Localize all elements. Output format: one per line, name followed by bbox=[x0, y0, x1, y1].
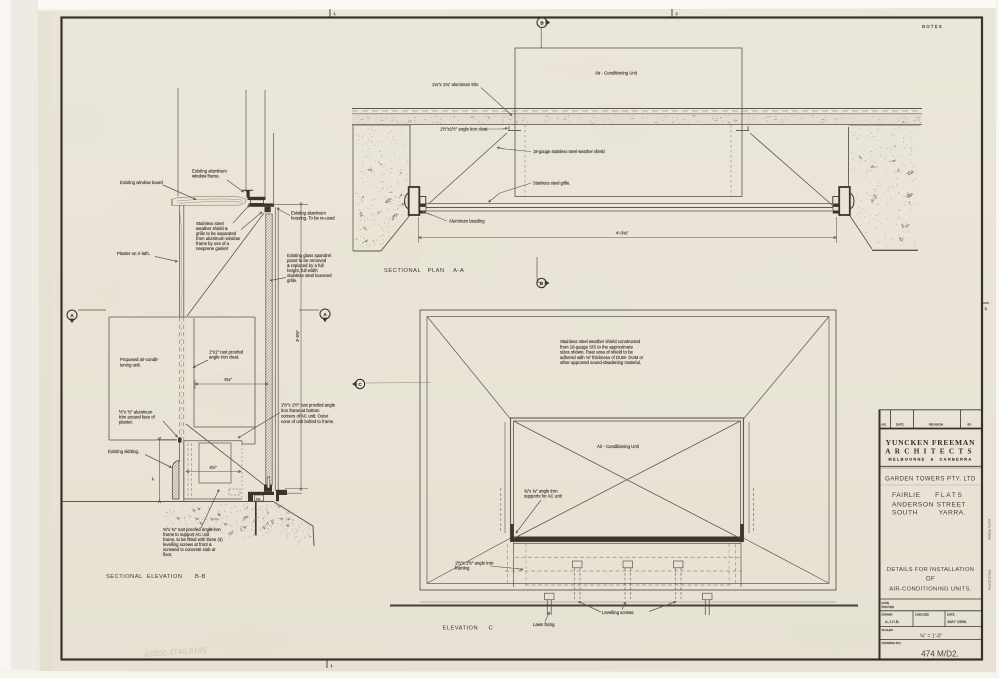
svg-text:DATE: DATE bbox=[896, 423, 904, 427]
svg-text:GARDEN TOWERS PTY. LTD: GARDEN TOWERS PTY. LTD bbox=[885, 477, 976, 483]
svg-text:SOUTH: SOUTH bbox=[892, 510, 918, 517]
svg-text:DRAWING NO.: DRAWING NO. bbox=[882, 641, 902, 645]
svg-text:angle iron cleat.: angle iron cleat. bbox=[209, 355, 239, 360]
svg-text:Existing skirting.: Existing skirting. bbox=[108, 449, 139, 454]
svg-text:Existing window board: Existing window board bbox=[120, 180, 163, 185]
svg-text:´¾′: ´¾′ bbox=[210, 517, 215, 521]
svg-text:sizes shown. Rear area of: sizes shown. Rear area of shield to be bbox=[560, 350, 633, 355]
svg-text:Lawn fixing: Lawn fixing bbox=[533, 622, 555, 627]
svg-text:7″: 7″ bbox=[151, 477, 156, 481]
svg-text:ARCHITECTS: ARCHITECTS bbox=[885, 448, 976, 456]
svg-text:NOTES: NOTES bbox=[922, 24, 943, 29]
svg-text:Air - Conditioning Unit: Air - Conditioning Unit bbox=[595, 71, 638, 76]
svg-text:SCALES: SCALES bbox=[882, 628, 893, 632]
svg-text:FAIRLIE FLATS: FAIRLIE FLATS bbox=[988, 519, 992, 540]
svg-text:window frame.: window frame. bbox=[192, 174, 220, 179]
svg-text:´¾′: ´¾′ bbox=[242, 525, 247, 529]
svg-text:PLACE SCALE: PLACE SCALE bbox=[988, 569, 992, 590]
svg-text:4½″: 4½″ bbox=[209, 465, 217, 470]
svg-text:ELEVATION C: ELEVATION C bbox=[443, 626, 494, 632]
svg-text:Stainless steel weather shi: Stainless steel weather shield construct… bbox=[560, 339, 641, 344]
svg-text:YUNCKEN FREEMAN: YUNCKEN FREEMAN bbox=[886, 438, 976, 447]
svg-text:1½″x 1½″ rust proofed angle: 1½″x 1½″ rust proofed angle bbox=[281, 403, 336, 408]
svg-text:ioning unit.: ioning unit. bbox=[120, 363, 141, 368]
svg-text:from 18-gauge S/S to the: from 18-gauge S/S to the approximate bbox=[560, 344, 633, 349]
svg-text:Aluminum beading: Aluminum beading bbox=[449, 219, 485, 224]
svg-text:other approved sound-deadeni: other approved sound-deadening material. bbox=[560, 360, 641, 365]
svg-text:STREET: STREET bbox=[937, 502, 966, 509]
svg-text:corners of AC unit. Outer: corners of AC unit. Outer bbox=[281, 414, 329, 419]
svg-text:Plaster on X-lath.: Plaster on X-lath. bbox=[117, 251, 150, 256]
svg-text:MAY 1968.: MAY 1968. bbox=[948, 619, 967, 624]
svg-text:474 M/D2.: 474 M/D2. bbox=[921, 650, 959, 659]
svg-text:Stainless steel grille.: Stainless steel grille. bbox=[533, 181, 570, 186]
svg-text:DETAILS FOR INSTALLATION: DETAILS FOR INSTALLATION bbox=[887, 567, 974, 573]
svg-text:framing: framing bbox=[455, 566, 470, 571]
svg-text:REVISION: REVISION bbox=[929, 423, 943, 427]
svg-text:4′-0¾″: 4′-0¾″ bbox=[616, 231, 629, 236]
svg-text:CHECKED: CHECKED bbox=[915, 613, 929, 617]
svg-text:housing. To be re-used: housing. To be re-used bbox=[291, 216, 335, 221]
svg-text:supports for AC unit: supports for AC unit bbox=[524, 494, 563, 499]
svg-text:1¼″x 1¼″ aluminum trim: 1¼″x 1¼″ aluminum trim bbox=[432, 82, 479, 87]
svg-text:OF: OF bbox=[926, 577, 935, 583]
svg-text:FAIRLIE: FAIRLIE bbox=[892, 492, 920, 499]
svg-text:A.J.H.B.: A.J.H.B. bbox=[885, 619, 900, 624]
svg-text:1¾: 1¾ bbox=[256, 497, 261, 501]
svg-text:18-gauge stainless steel we: 18-gauge stainless steel weather shield bbox=[533, 149, 605, 154]
svg-text:Proposed air-condit-: Proposed air-condit- bbox=[120, 357, 159, 362]
svg-text:BY: BY bbox=[968, 423, 972, 427]
svg-text:FLATS: FLATS bbox=[935, 492, 963, 499]
svg-text:1½″x1½″ angle iron cleat: 1½″x1½″ angle iron cleat bbox=[440, 127, 488, 132]
svg-text:AIR-CONDITIONING UNITS.: AIR-CONDITIONING UNITS. bbox=[889, 587, 972, 593]
svg-text:SECTIONAL ELEVATION B-B: SECTIONAL ELEVATION B-B bbox=[106, 574, 206, 580]
svg-text:neoprene gasket: neoprene gasket bbox=[196, 246, 229, 251]
svg-text:MELBOURNE & CANBERRA: MELBOURNE & CANBERRA bbox=[888, 457, 972, 462]
svg-text:6¼″: 6¼″ bbox=[224, 377, 232, 382]
svg-text:DRAWN: DRAWN bbox=[882, 613, 893, 617]
svg-text:plaster.: plaster. bbox=[119, 420, 133, 425]
svg-text:DATE: DATE bbox=[947, 613, 955, 617]
svg-text:SECTIONAL PLAN A-A: SECTIONAL PLAN A-A bbox=[384, 268, 464, 274]
svg-text:YARRA.: YARRA. bbox=[939, 510, 966, 517]
svg-text:iron frame at bottom: iron frame at bottom bbox=[281, 408, 320, 413]
svg-text:ANDERSON: ANDERSON bbox=[892, 502, 934, 509]
svg-text:3′-6¾″: 3′-6¾″ bbox=[295, 330, 300, 342]
svg-text:adhered with ⅛″ thickness of: adhered with ⅛″ thickness of DUM- DUM or bbox=[560, 355, 644, 360]
svg-text:cone of unit bolted to fr: cone of unit bolted to frame. bbox=[281, 419, 334, 424]
svg-text:floor.: floor. bbox=[163, 552, 172, 557]
svg-text:Air - Conditioning Unit: Air - Conditioning Unit bbox=[597, 444, 640, 449]
svg-text:Levelling screws: Levelling screws bbox=[602, 610, 634, 615]
svg-text:⅛″ = 1′-0″: ⅛″ = 1′-0″ bbox=[920, 634, 943, 640]
svg-text:PRINTED: PRINTED bbox=[882, 605, 895, 609]
svg-text:grille.: grille. bbox=[287, 278, 297, 283]
svg-text:NO.: NO. bbox=[882, 423, 887, 427]
svg-text:´¾′: ´¾′ bbox=[176, 516, 181, 520]
